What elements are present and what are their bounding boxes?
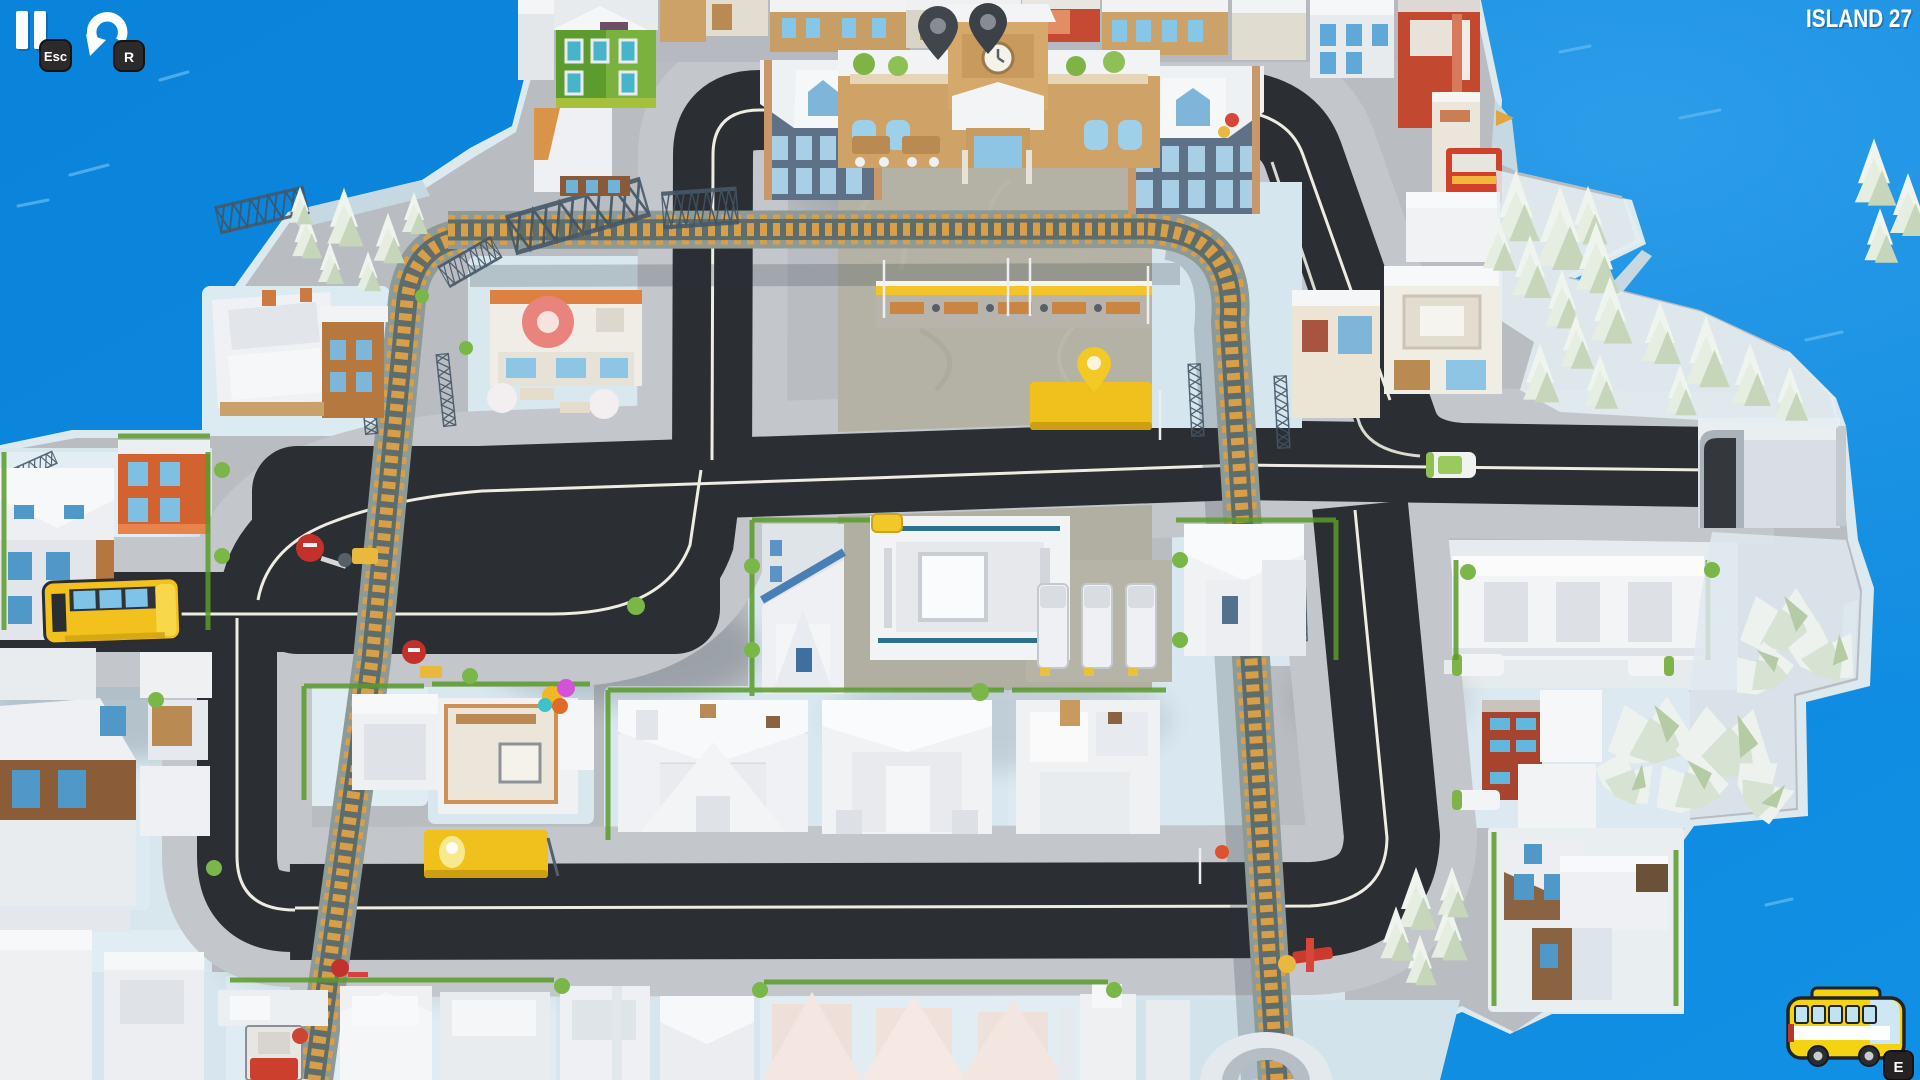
svg-text:Esc: Esc: [44, 49, 67, 64]
svg-text:E: E: [1893, 1059, 1903, 1076]
svg-text:R: R: [124, 49, 134, 65]
svg-text:ISLAND 27: ISLAND 27: [1806, 5, 1912, 33]
